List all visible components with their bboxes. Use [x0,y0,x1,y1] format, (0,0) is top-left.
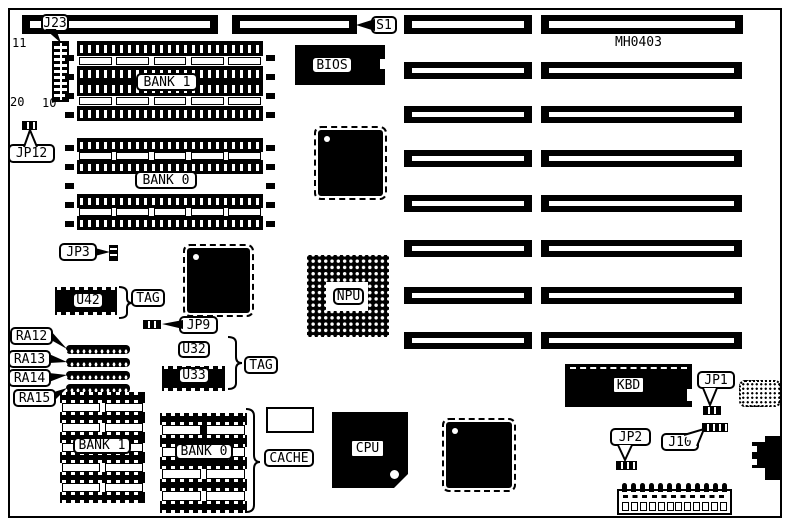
expansion-slot-long [541,287,742,304]
kbd-dashed-line [570,367,687,369]
ra15-label: RA15 [13,389,56,407]
ra12-sip-array [66,345,130,354]
expansion-slot-long [541,150,742,167]
simm-module [77,138,263,152]
qfp-pin1-dot [193,254,199,260]
simm-module [77,106,263,121]
u42-label: U42 [72,292,104,309]
dip-bank0-label: BANK 0 [175,443,233,460]
expansion-slot-long [541,62,742,79]
top-slot-segment-3 [404,15,532,34]
expansion-slot-short [404,332,532,349]
j23-label: J23 [41,14,69,32]
hatched-pad [739,380,781,407]
simm-latch [263,138,287,230]
simm-latch [263,41,287,121]
simm-socket-row [77,97,263,105]
simm-bank1-label: BANK 1 [136,73,198,91]
simm-latch [53,41,77,121]
jp2-label: JP2 [610,428,651,446]
ra14-sip-array [66,371,130,380]
simm-module [77,216,263,230]
qfp-pin1-dot [452,428,458,434]
kbd-label: KBD [613,377,644,393]
ra14-label: RA14 [8,369,51,387]
npu-label: NPU [333,288,364,305]
cache-label: CACHE [264,449,314,467]
ra13-label: RA13 [8,350,51,368]
j23-pin-10: 10 [42,97,56,109]
qfp-chip-bottom-right [446,422,512,488]
u32-label: U32 [178,341,210,358]
expansion-slot-short [404,240,532,257]
cpu-label: CPU [351,440,384,457]
j10-label: J10 [661,433,699,451]
power-pin-dashes [623,495,726,498]
ra13-sip-array [66,358,130,367]
j23-pin-20: 20 [10,96,24,108]
ra12-label: RA12 [10,327,53,345]
simm-socket-row [77,57,263,65]
j23-pin-11: 11 [12,37,26,49]
top-slot-segment-2 [232,15,357,34]
jp3-label: JP3 [59,243,97,261]
simm-socket-row [77,152,263,160]
tag-u32-u33-label: TAG [244,356,278,374]
expansion-slot-short [404,106,532,123]
qfp-chip-mid-left [187,248,250,313]
din-notch [752,459,757,465]
simm-latch [53,138,77,230]
dip-bank0 [160,413,247,513]
expansion-slot-short [404,287,532,304]
tag-u42-label: TAG [131,289,165,307]
expansion-slot-short [404,195,532,212]
expansion-slot-long [541,106,742,123]
dip-bank1-label: BANK 1 [73,437,131,454]
simm-module [77,41,263,56]
jp1-jumper [703,406,721,415]
din-connector-body [765,436,782,480]
expansion-slot-long [541,195,742,212]
jp9-jumper [143,320,161,329]
bios-label: BIOS [311,56,353,74]
u33-label: U33 [178,367,210,384]
simm-socket-row [77,208,263,216]
din-notch [752,446,757,452]
expansion-slot-short [404,62,532,79]
j10-header [702,423,728,432]
cache-empty-socket [266,407,314,433]
expansion-slot-long [541,240,742,257]
expansion-slot-long [541,332,742,349]
bios-notch [380,59,385,69]
jp1-label: JP1 [697,371,735,389]
jp2-jumper [616,461,637,470]
din-connector-front [752,442,765,468]
part-number: MH0403 [615,37,662,49]
simm-bank0-label: BANK 0 [135,171,197,189]
top-slot-segment-4 [541,15,743,34]
qfp-chip-below-bios [318,130,383,196]
power-pins [622,483,727,492]
power-connector [617,489,732,515]
jp12-label: JP12 [8,144,55,163]
s1-label: S1 [371,16,397,34]
simm-module [77,194,263,208]
kbd-notch [687,389,692,401]
qfp-pin1-dot [324,136,330,142]
power-pin-holes [622,502,727,511]
jp9-label: JP9 [179,316,218,334]
cpu-pin1-dot [390,470,399,479]
motherboard-diagram: MH0403 11 20 10 BANK 1 BANK [0,0,791,527]
expansion-slot-short [404,150,532,167]
jp3-jumper [109,245,118,261]
jp12-jumper [22,121,37,130]
